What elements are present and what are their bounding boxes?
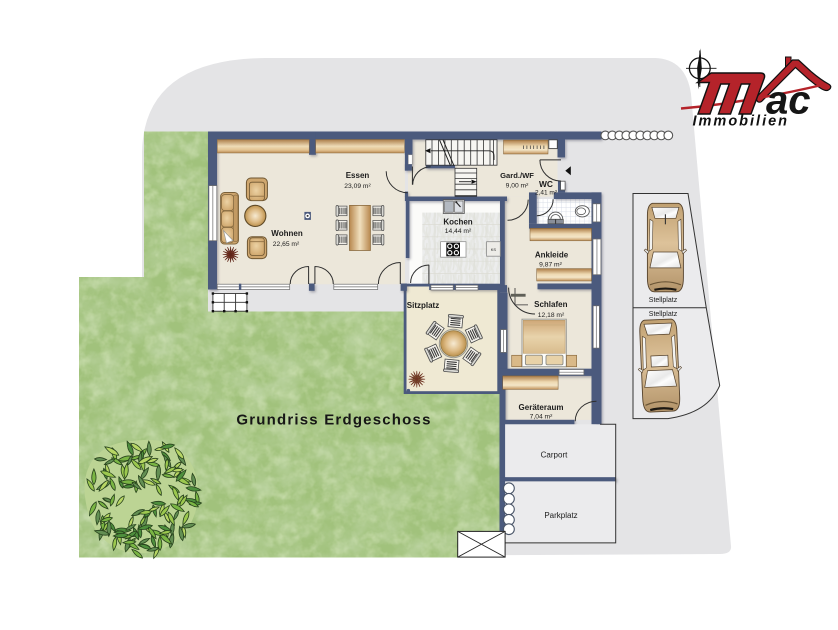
svg-text:Wohnen: Wohnen [271,229,303,238]
svg-text:Sitzplatz: Sitzplatz [407,301,439,310]
svg-text:22,65 m²: 22,65 m² [273,241,300,248]
svg-text:23,09 m²: 23,09 m² [344,183,371,190]
svg-text:14,44 m²: 14,44 m² [445,228,472,235]
svg-text:Carport: Carport [541,451,568,460]
svg-text:Gard./WF: Gard./WF [500,171,534,180]
svg-text:KS: KS [491,247,497,252]
svg-text:Kochen: Kochen [443,218,472,227]
svg-text:Parkplatz: Parkplatz [544,511,577,520]
svg-text:12,18 m²: 12,18 m² [538,312,565,319]
svg-text:WC: WC [539,179,553,189]
svg-text:Immobilien: Immobilien [693,114,790,130]
svg-text:2,41 m²: 2,41 m² [535,190,558,197]
svg-text:9,87 m²: 9,87 m² [539,262,562,269]
svg-text:Grundriss Erdgeschoss: Grundriss Erdgeschoss [236,412,431,429]
svg-text:Geräteraum: Geräteraum [519,403,564,412]
svg-text:9,00 m²: 9,00 m² [506,183,529,190]
svg-text:7,04 m²: 7,04 m² [530,414,553,421]
svg-text:Stellplatz: Stellplatz [649,297,678,304]
svg-text:Ankleide: Ankleide [535,251,569,260]
svg-text:Essen: Essen [346,171,370,180]
svg-text:Schlafen: Schlafen [534,300,567,309]
svg-text:Stellplatz: Stellplatz [649,311,678,318]
